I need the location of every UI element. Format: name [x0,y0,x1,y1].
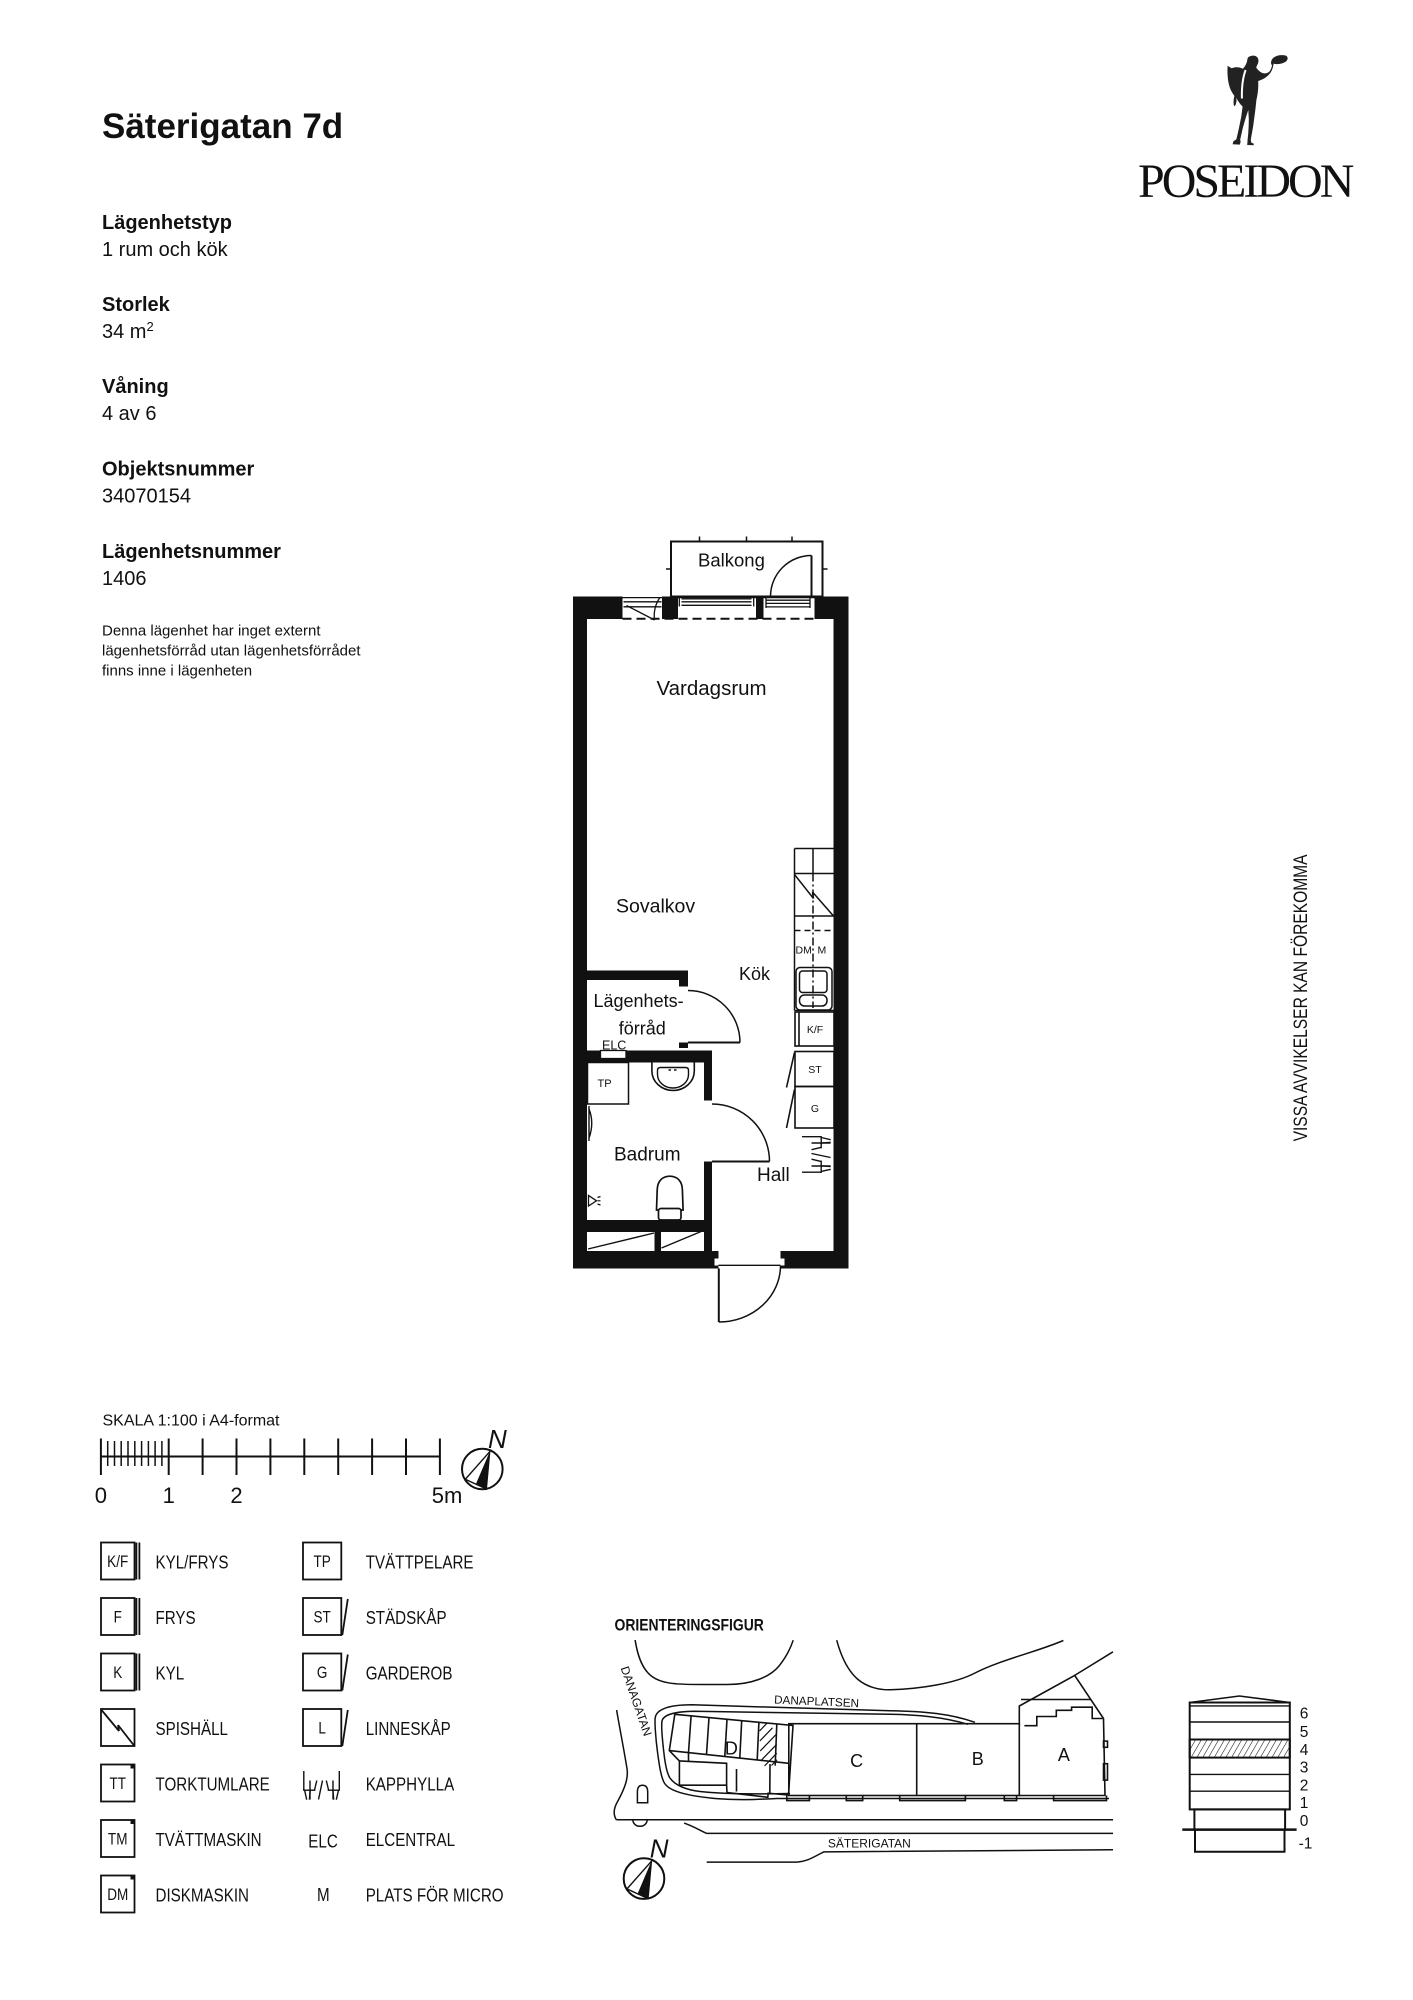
svg-text:Storlek: Storlek [102,294,171,316]
svg-text:Badrum: Badrum [614,1145,681,1166]
svg-text:C: C [850,1751,863,1771]
svg-text:34070154: 34070154 [102,486,191,508]
svg-text:0: 0 [95,1483,107,1508]
svg-text:K/F: K/F [807,1024,823,1036]
svg-text:4: 4 [1300,1742,1309,1759]
svg-text:Lägenhets-: Lägenhets- [594,991,684,1011]
svg-text:ELCENTRAL: ELCENTRAL [366,1830,455,1851]
svg-text:STÄDSKÅP: STÄDSKÅP [366,1608,447,1629]
svg-text:A: A [1058,1745,1070,1765]
svg-text:ST: ST [313,1608,330,1627]
svg-text:POSEIDON: POSEIDON [1138,155,1354,208]
svg-text:Våning: Våning [102,375,169,398]
svg-text:TP: TP [597,1078,611,1090]
svg-text:L: L [318,1719,326,1738]
svg-text:G: G [317,1664,328,1683]
svg-text:TVÄTTPELARE: TVÄTTPELARE [366,1552,474,1573]
svg-text:Denna lägenhet har inget exter: Denna lägenhet har inget externt [102,623,321,640]
svg-text:Objektsnummer: Objektsnummer [102,459,254,481]
svg-text:Lägenhetstyp: Lägenhetstyp [102,212,232,234]
svg-text:Vardagsrum: Vardagsrum [657,677,767,700]
svg-text:D: D [725,1739,738,1759]
svg-text:K: K [113,1664,122,1683]
svg-text:3: 3 [1300,1759,1309,1776]
svg-text:KYL: KYL [156,1663,185,1684]
svg-text:SPISHÄLL: SPISHÄLL [156,1719,228,1740]
svg-text:-1: -1 [1299,1835,1313,1852]
svg-text:ELC: ELC [308,1831,337,1852]
svg-text:DISKMASKIN: DISKMASKIN [156,1885,250,1906]
svg-text:ST: ST [808,1064,822,1076]
svg-text:N: N [650,1834,669,1864]
svg-text:lägenhetsförråd utan lägenhets: lägenhetsförråd utan lägenhetsförrådet [102,643,361,660]
svg-text:SKALA 1:100 i A4-format: SKALA 1:100 i A4-format [103,1413,281,1430]
svg-text:1: 1 [1300,1795,1309,1812]
svg-text:DM: DM [796,945,812,957]
svg-text:K/F: K/F [107,1553,128,1572]
svg-text:4 av 6: 4 av 6 [102,403,156,425]
svg-text:34 m2: 34 m2 [102,319,154,343]
svg-text:1406: 1406 [102,568,147,590]
svg-text:FRYS: FRYS [156,1608,196,1629]
svg-text:F: F [114,1608,122,1627]
svg-text:SÄTERIGATAN: SÄTERIGATAN [828,1837,911,1851]
svg-text:Balkong: Balkong [698,550,765,571]
svg-text:5m: 5m [432,1483,463,1508]
svg-text:B: B [972,1749,984,1769]
svg-text:M: M [818,945,827,957]
svg-text:VISSA AVVIKELSER KAN FÖREKOMMA: VISSA AVVIKELSER KAN FÖREKOMMA [1290,854,1312,1141]
svg-text:GARDEROB: GARDEROB [366,1663,453,1684]
svg-text:Kök: Kök [739,964,771,984]
svg-text:Sovalkov: Sovalkov [616,896,695,918]
svg-text:0: 0 [1300,1813,1309,1830]
svg-text:G: G [811,1103,819,1115]
svg-text:Säterigatan 7d: Säterigatan 7d [102,107,343,146]
svg-text:N: N [488,1424,507,1454]
svg-text:1 rum och kök: 1 rum och kök [102,239,229,261]
svg-text:2: 2 [1300,1778,1309,1795]
svg-text:TP: TP [313,1553,330,1572]
svg-text:KAPPHYLLA: KAPPHYLLA [366,1774,455,1795]
svg-text:ORIENTERINGSFIGUR: ORIENTERINGSFIGUR [615,1616,764,1635]
svg-text:TORKTUMLARE: TORKTUMLARE [156,1774,270,1795]
svg-text:TM: TM [108,1830,128,1849]
svg-text:1: 1 [163,1483,175,1508]
svg-text:TT: TT [109,1775,126,1794]
svg-text:M: M [317,1885,330,1906]
svg-text:TVÄTTMASKIN: TVÄTTMASKIN [156,1830,262,1851]
svg-text:finns inne i lägenheten: finns inne i lägenheten [102,663,252,680]
svg-text:förråd: förråd [619,1019,666,1039]
svg-text:6: 6 [1300,1706,1309,1723]
svg-text:5: 5 [1300,1724,1309,1741]
svg-text:Hall: Hall [757,1165,790,1186]
svg-text:KYL/FRYS: KYL/FRYS [156,1552,229,1573]
svg-text:DM: DM [107,1886,128,1905]
svg-text:PLATS FÖR MICRO: PLATS FÖR MICRO [366,1885,504,1906]
svg-text:Lägenhetsnummer: Lägenhetsnummer [102,541,281,563]
svg-text:LINNESKÅP: LINNESKÅP [366,1719,451,1740]
svg-text:2: 2 [230,1483,242,1508]
